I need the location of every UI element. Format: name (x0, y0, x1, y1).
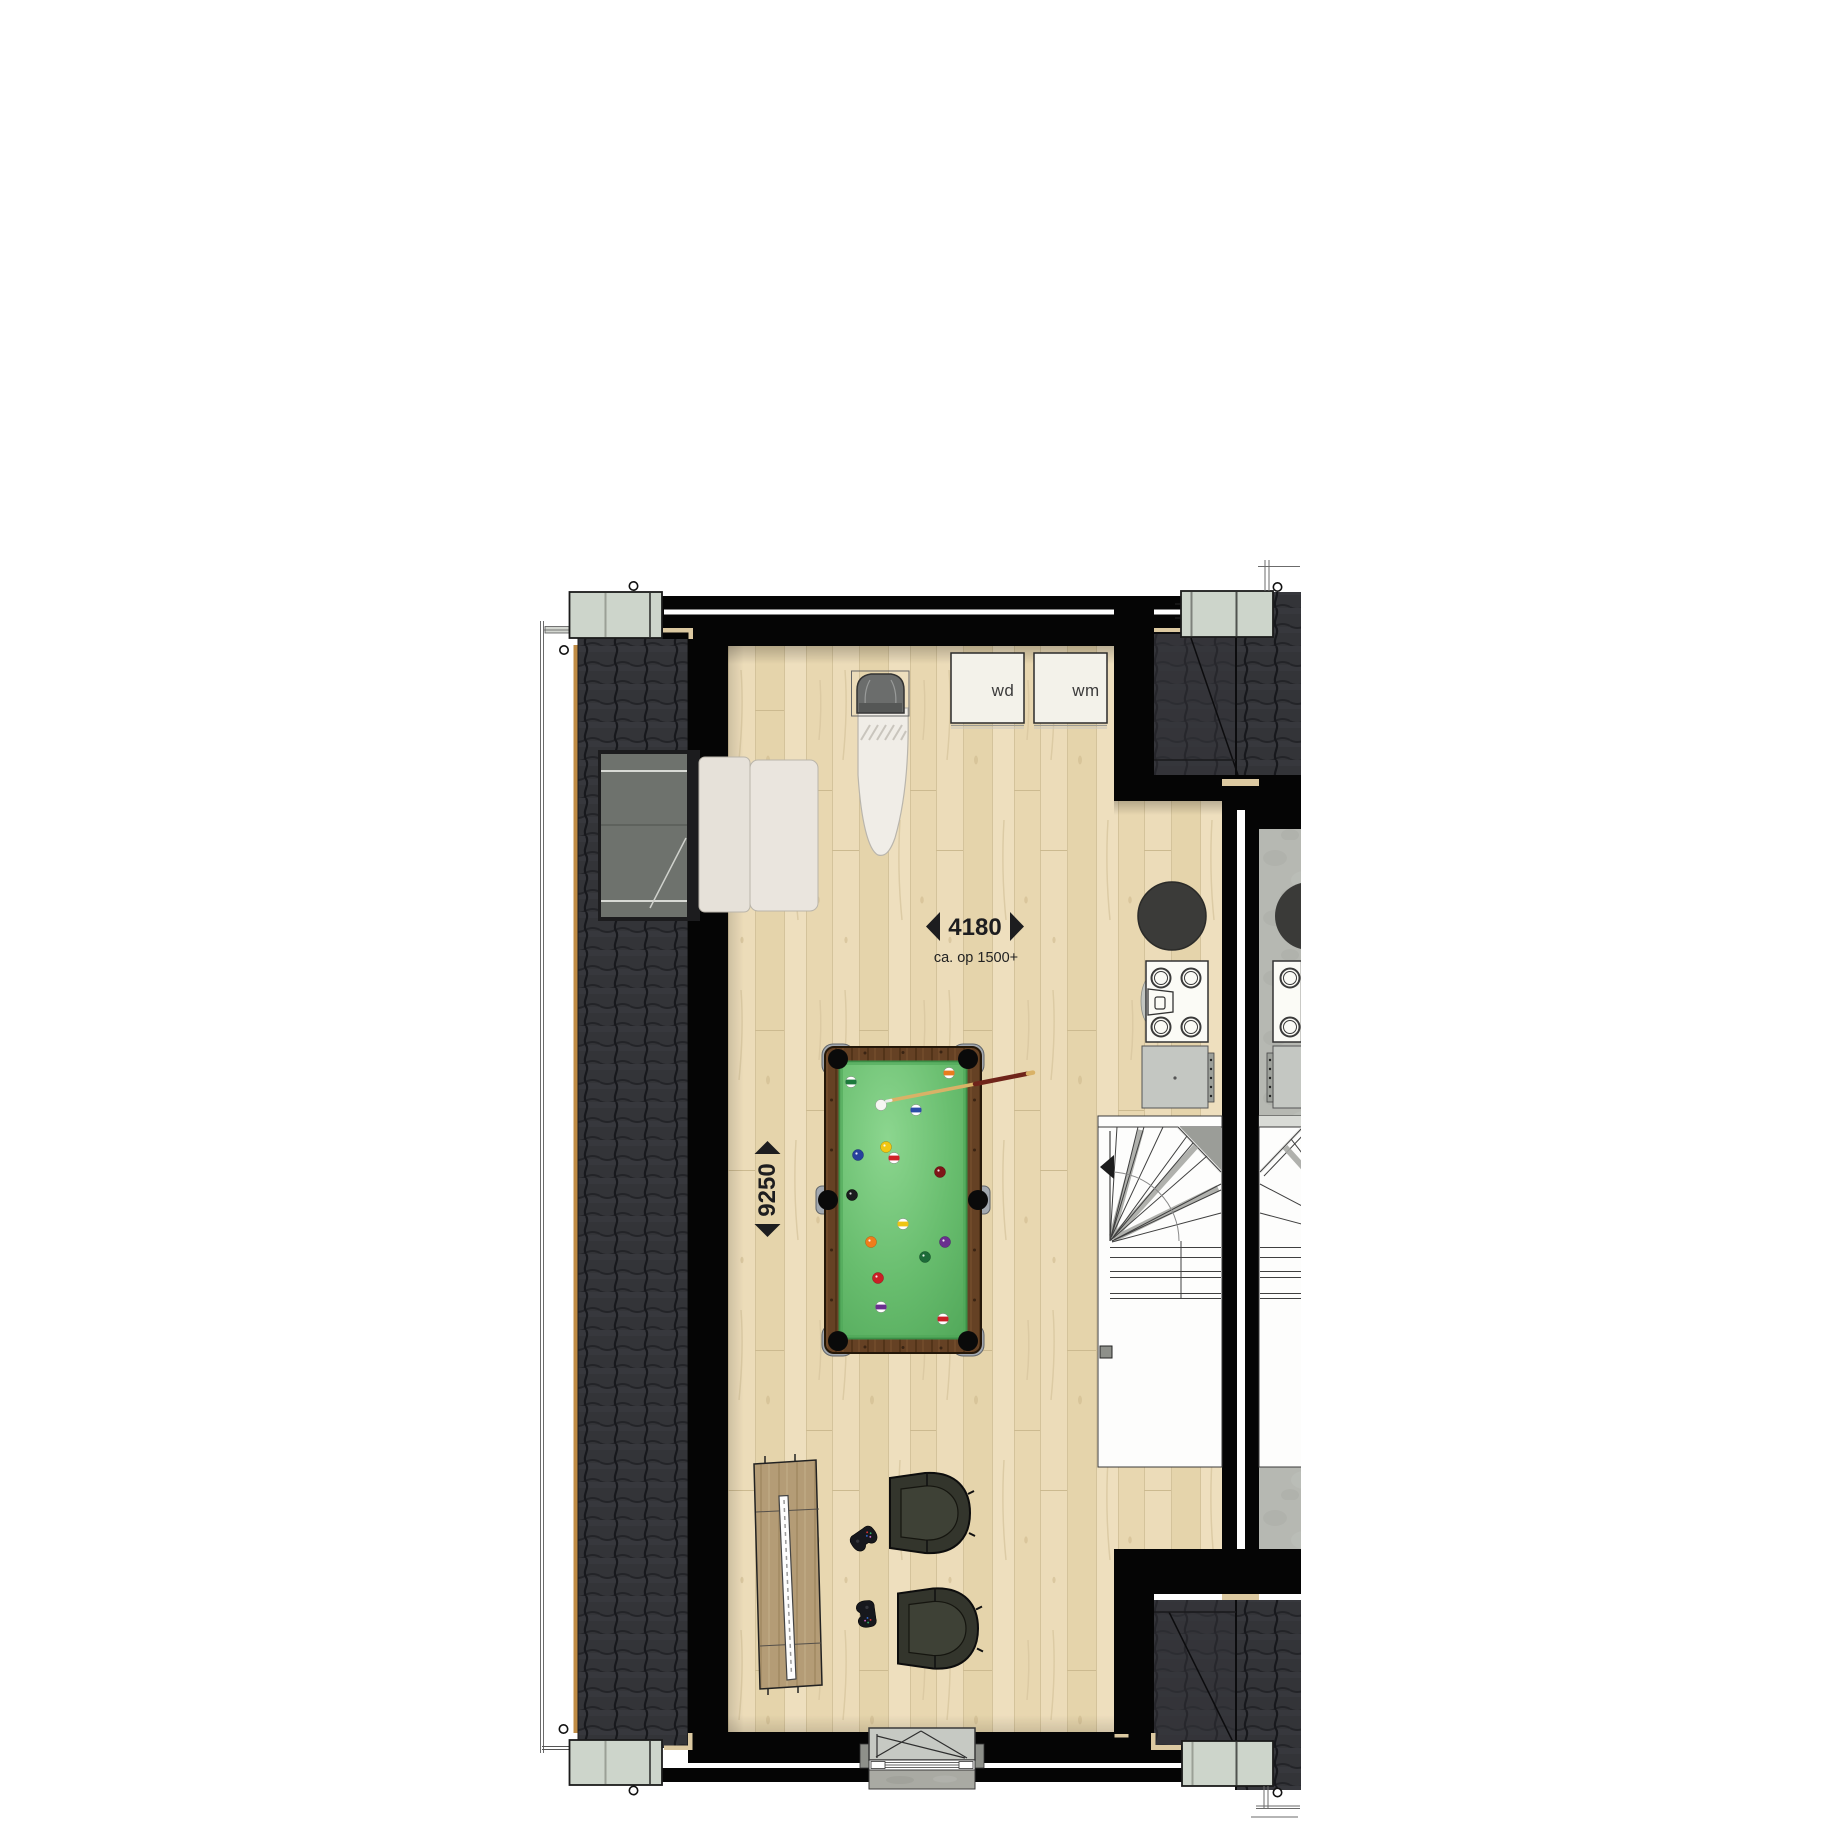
svg-text:ca. op 1500+: ca. op 1500+ (934, 950, 1018, 966)
svg-text:9250: 9250 (754, 1163, 781, 1216)
svg-text:4180: 4180 (948, 914, 1001, 941)
svg-text:wd: wd (991, 681, 1015, 700)
svg-text:wm: wm (1071, 681, 1099, 700)
